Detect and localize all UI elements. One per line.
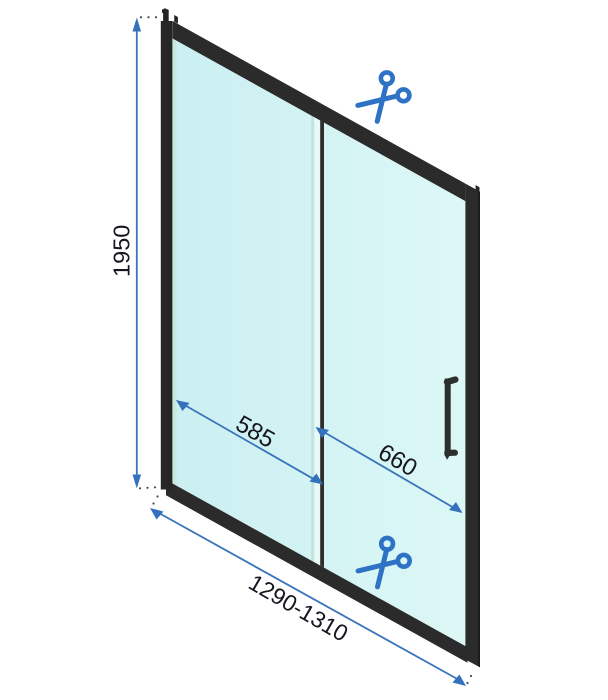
svg-text:1950: 1950 <box>109 225 135 277</box>
